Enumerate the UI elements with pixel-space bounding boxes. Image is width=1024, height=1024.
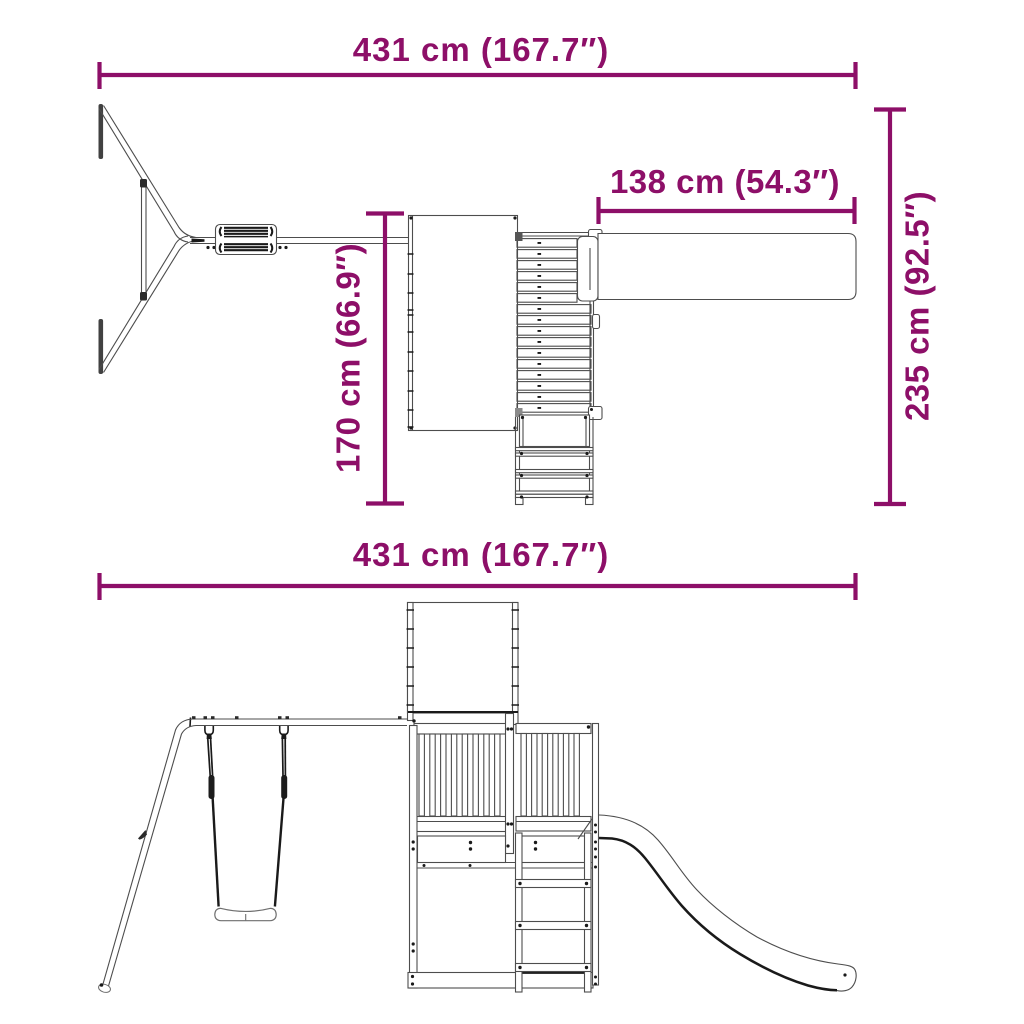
svg-text:170 cm (66.9″): 170 cm (66.9″) [330, 243, 367, 473]
svg-text:431 cm (167.7″): 431 cm (167.7″) [353, 31, 609, 68]
svg-text:138 cm (54.3″): 138 cm (54.3″) [610, 163, 840, 200]
svg-text:431 cm (167.7″): 431 cm (167.7″) [353, 536, 609, 573]
svg-text:235 cm (92.5″): 235 cm (92.5″) [899, 191, 936, 421]
